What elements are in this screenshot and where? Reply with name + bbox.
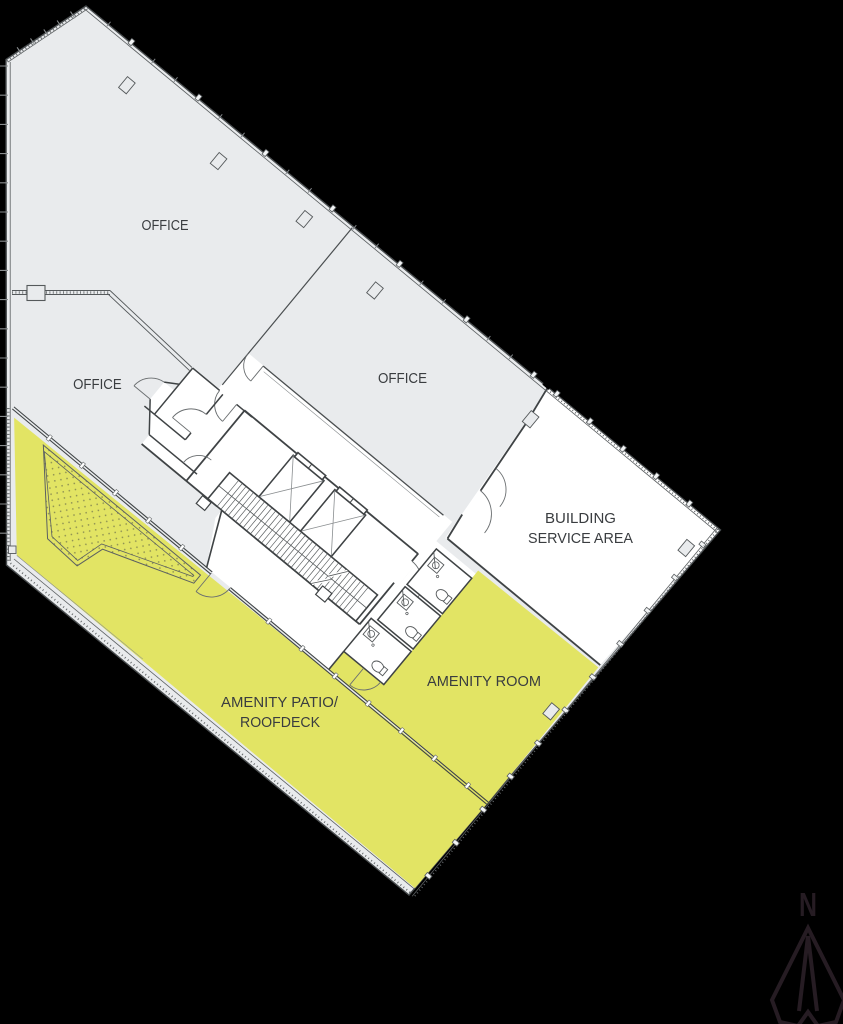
- svg-text:ROOFDECK: ROOFDECK: [240, 715, 320, 731]
- svg-text:SERVICE AREA: SERVICE AREA: [528, 531, 633, 547]
- svg-text:OFFICE: OFFICE: [142, 218, 189, 234]
- svg-text:OFFICE: OFFICE: [73, 377, 122, 393]
- svg-text:AMENITY ROOM: AMENITY ROOM: [427, 674, 541, 690]
- svg-text:N: N: [799, 886, 817, 923]
- svg-text:OFFICE: OFFICE: [378, 371, 427, 387]
- svg-text:BUILDING: BUILDING: [545, 511, 616, 527]
- svg-text:AMENITY PATIO/: AMENITY PATIO/: [221, 695, 339, 711]
